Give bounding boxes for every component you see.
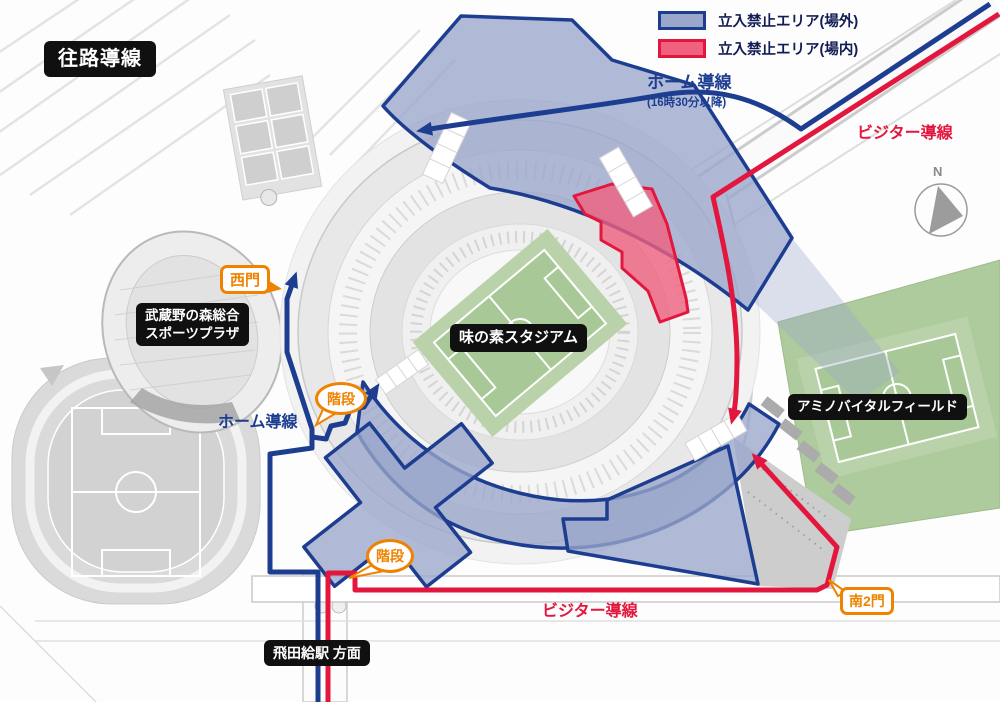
- visitor-route-label-top: ビジター導線: [857, 119, 953, 143]
- sports-plaza-line2: スポーツプラザ: [145, 325, 240, 343]
- home-route-label-top: ホーム導線 (16時30分以降): [647, 68, 732, 110]
- south2-gate-label: 南2門: [840, 587, 894, 615]
- restricted-outside-swatch: [658, 11, 706, 30]
- home-route-time-note: (16時30分以降): [647, 94, 732, 110]
- restricted-inside-swatch: [658, 39, 706, 58]
- stadium-label: 味の素スタジアム: [450, 324, 587, 352]
- compass-north-label: N: [933, 164, 942, 179]
- station-direction-label: 飛田給駅 方面: [264, 640, 370, 666]
- stadium-area-map: 往路導線 立入禁止エリア(場外) 立入禁止エリア(場内) ホーム導線 (16時3…: [0, 0, 1000, 702]
- visitor-route-label-bottom: ビジター導線: [542, 597, 638, 621]
- legend: 立入禁止エリア(場外) 立入禁止エリア(場内): [658, 10, 858, 59]
- amino-vital-field-label: アミノバイタルフィールド: [788, 394, 967, 420]
- legend-item-outside: 立入禁止エリア(場外): [658, 10, 858, 31]
- legend-item-inside: 立入禁止エリア(場内): [658, 38, 858, 59]
- legend-label: 立入禁止エリア(場外): [718, 10, 858, 31]
- stairs-bubble-west: 階段: [315, 382, 367, 415]
- west-gate-label: 西門: [220, 265, 270, 294]
- home-route-label-west: ホーム導線: [218, 408, 298, 432]
- sports-plaza-line1: 武蔵野の森総合: [145, 307, 240, 325]
- sports-plaza-label: 武蔵野の森総合 スポーツプラザ: [136, 303, 249, 346]
- legend-label: 立入禁止エリア(場内): [718, 38, 858, 59]
- home-route-name: ホーム導線: [647, 68, 732, 93]
- stairs-bubble-south: 階段: [366, 539, 414, 573]
- map-title: 往路導線: [44, 41, 156, 77]
